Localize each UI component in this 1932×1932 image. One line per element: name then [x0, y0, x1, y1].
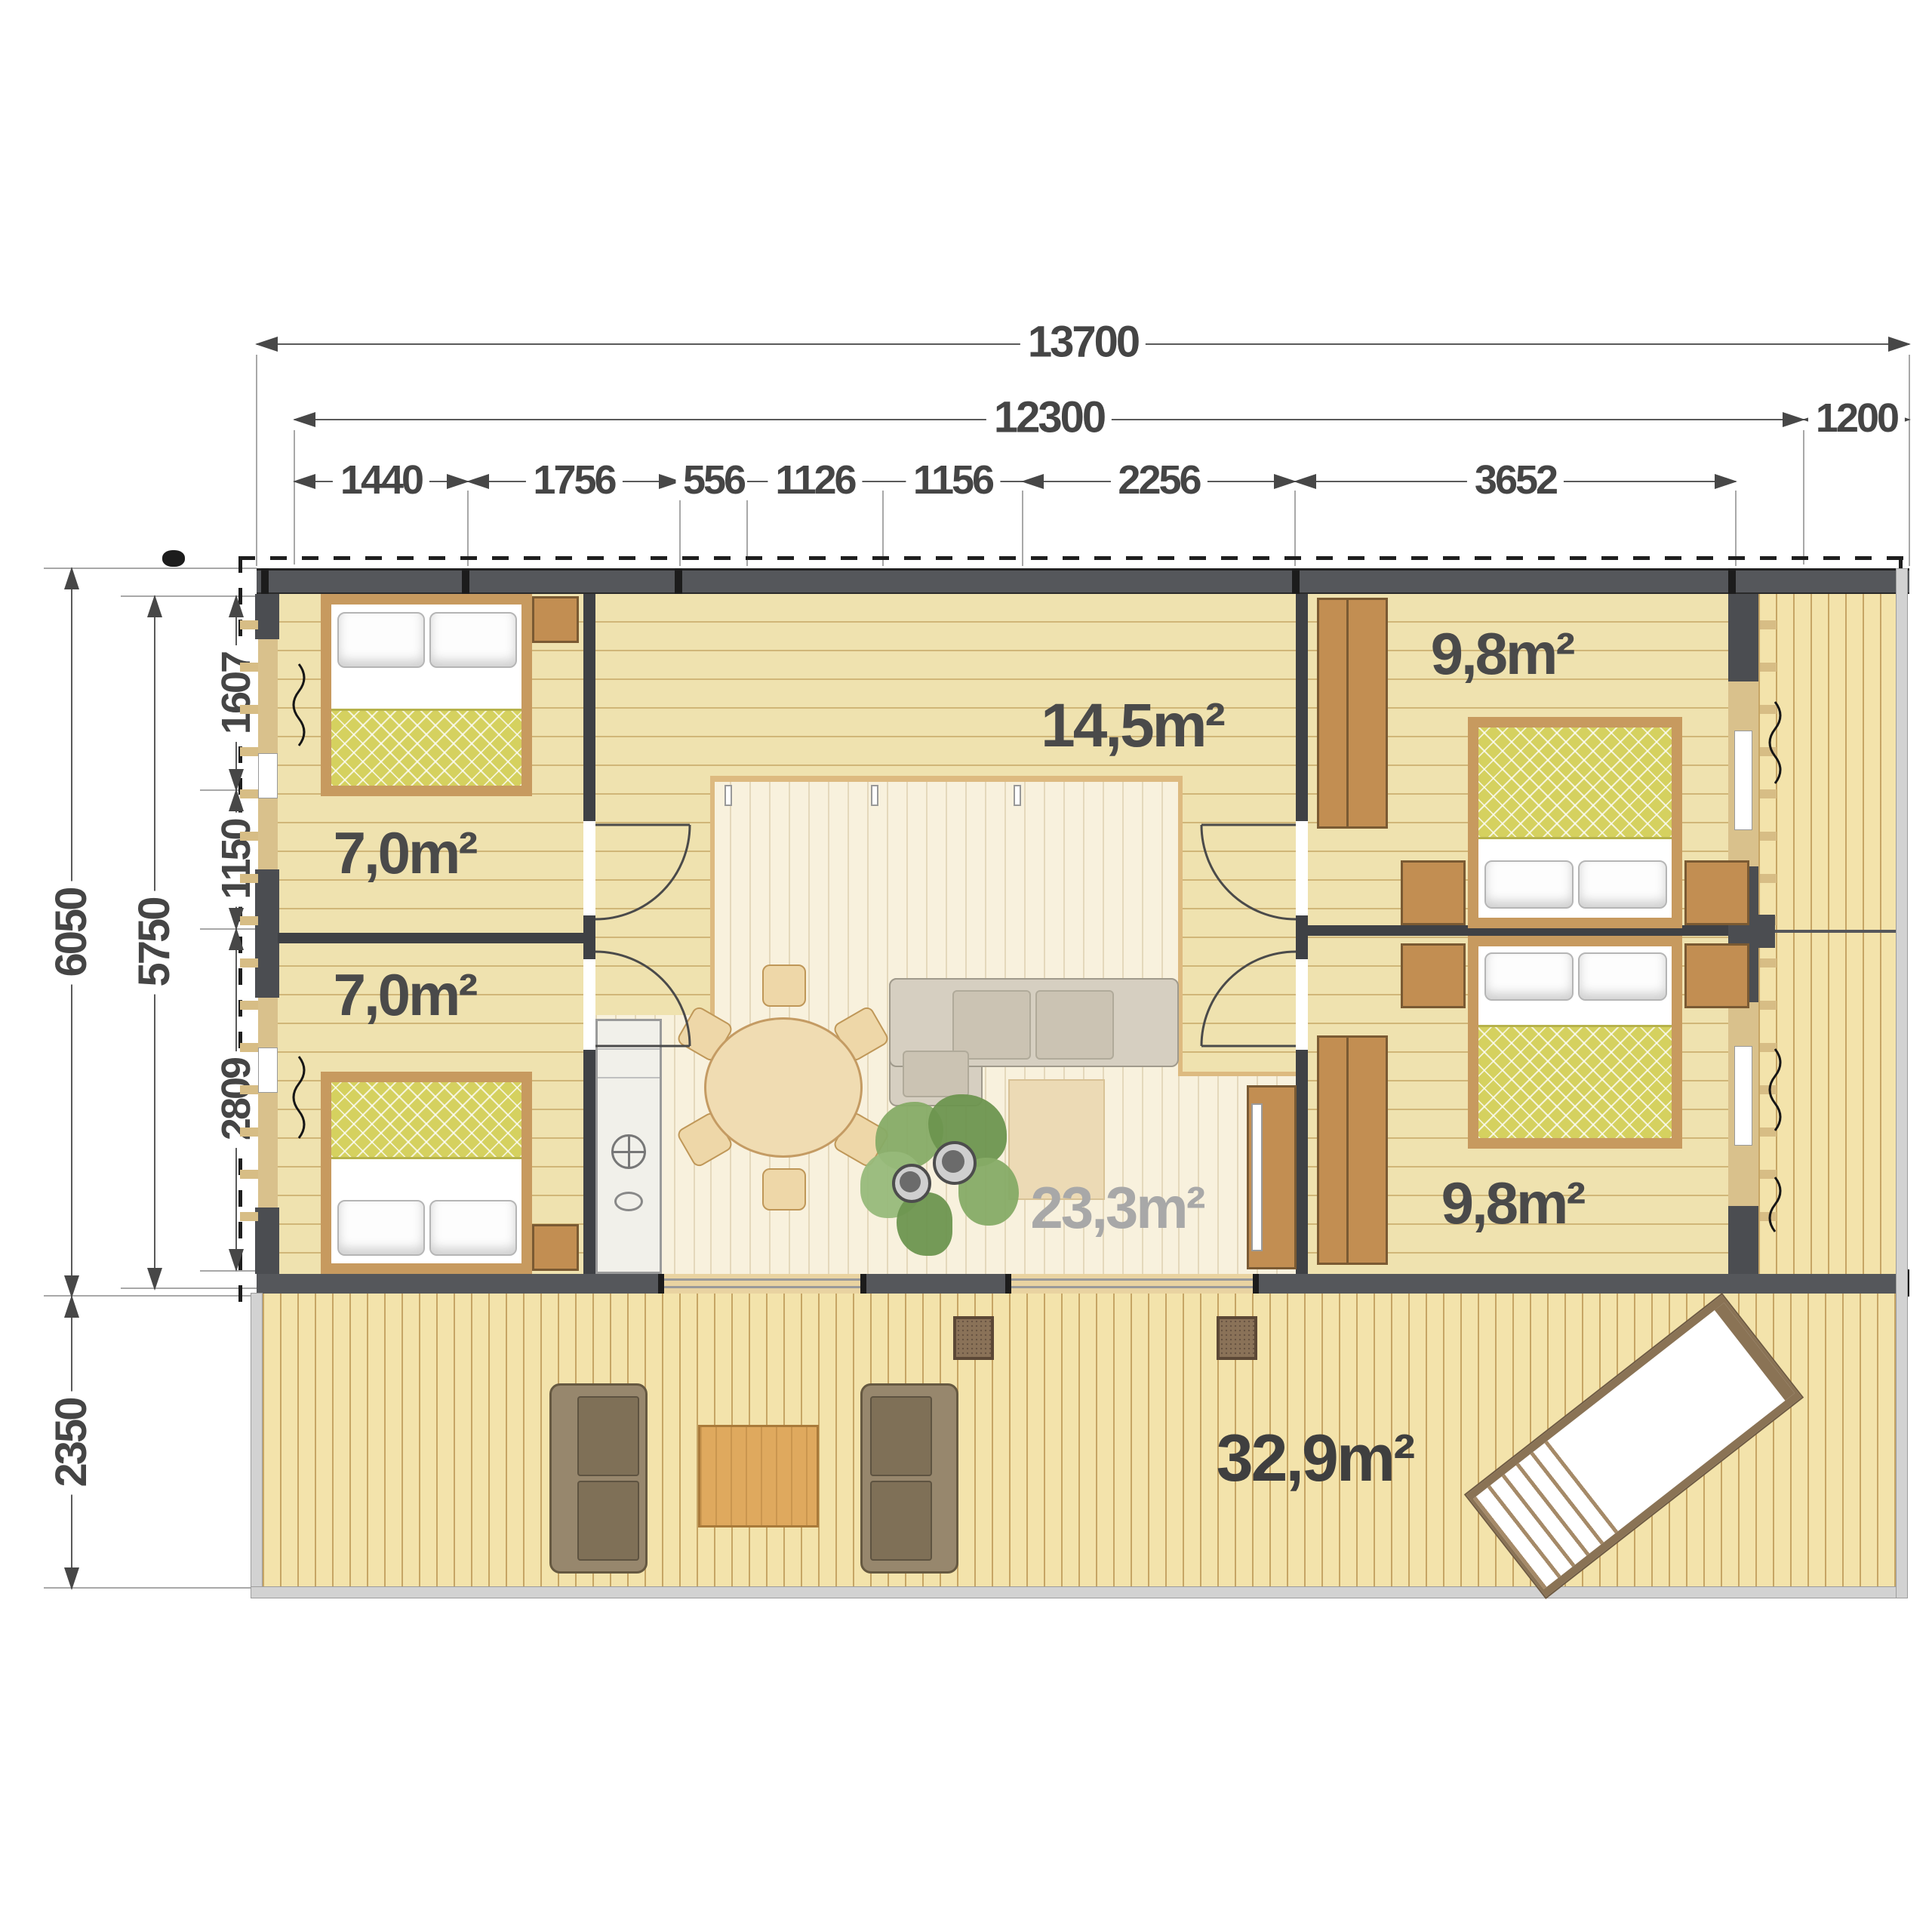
wall-mark	[261, 568, 269, 594]
wall-bedrooms-left	[583, 1050, 595, 1274]
room-label-bedroom-left-top: 7,0m²	[334, 823, 476, 882]
dim-top-main-label: 12300	[986, 396, 1112, 440]
post-mark	[724, 785, 732, 806]
outdoor-sofa-right	[860, 1383, 958, 1574]
wall-mark	[1253, 1274, 1259, 1294]
dining-chair	[762, 1168, 806, 1211]
joist-tabs-left	[240, 620, 258, 1254]
wall-right-post-top	[1728, 594, 1758, 681]
terrace-edge-right	[1896, 568, 1908, 1598]
post-mark	[1014, 785, 1021, 806]
room-label-hall: 14,5m²	[1041, 695, 1223, 757]
nightstand	[1401, 860, 1466, 925]
post-mark	[871, 785, 878, 806]
nightstand	[1684, 943, 1749, 1008]
wardrobe-right-bottom	[1317, 1035, 1388, 1265]
extension-line	[1294, 491, 1296, 566]
outdoor-sofa-left	[549, 1383, 648, 1574]
bed-right-top	[1468, 717, 1682, 928]
nightstand	[532, 1224, 579, 1271]
wall-bedrooms-left	[583, 915, 595, 959]
room-label-living: 23,3m²	[1030, 1178, 1203, 1237]
dim-segment-3652: 3652	[1295, 470, 1736, 493]
wall-bottom-mid	[860, 1274, 1011, 1294]
plant	[860, 1094, 1019, 1275]
nightstand	[1684, 860, 1749, 925]
terrace-edge-bottom	[251, 1586, 1908, 1598]
nightstand	[1401, 943, 1466, 1008]
dim-left-total: 6050	[60, 568, 83, 1297]
extension-line	[1909, 355, 1910, 566]
wall-mark	[1728, 568, 1736, 594]
extension-line	[1022, 491, 1023, 566]
wall-left-post-mid	[255, 869, 279, 998]
dim-left-terrace: 2350	[60, 1297, 83, 1589]
doormat	[953, 1316, 994, 1360]
wall-top	[257, 568, 1909, 594]
wall-bottom-right	[1253, 1274, 1909, 1294]
marker-dot	[162, 550, 185, 567]
wall-right-post-bottom	[1728, 1206, 1758, 1274]
dim-segment-2256: 2256	[1023, 470, 1295, 493]
bed-left-top	[321, 594, 532, 796]
tv-screen	[1251, 1103, 1263, 1251]
dim-top-total-label: 13700	[1020, 321, 1146, 365]
dim-left-inner: 5750	[143, 596, 166, 1289]
dim-segment-1126: 1126	[747, 470, 883, 493]
stove-icon	[611, 1134, 646, 1169]
outdoor-table	[698, 1425, 819, 1527]
dim-top-side: 1200	[1804, 408, 1909, 431]
dim-segment-1156: 1156	[883, 470, 1023, 493]
wall-bedrooms-right	[1296, 1050, 1308, 1274]
dim-segment-1440: 1440	[294, 470, 468, 493]
window-right-1	[1734, 731, 1752, 830]
sofa-cushion	[952, 990, 1031, 1060]
dim-top-main: 12300	[294, 408, 1804, 431]
bed-right-bottom	[1468, 936, 1682, 1149]
living-boundary-top	[710, 776, 1178, 782]
wall-bedrooms-left	[583, 594, 595, 821]
dashed-reference-top	[238, 556, 1915, 560]
dining-chair	[762, 964, 806, 1007]
sink-icon	[614, 1192, 643, 1211]
floor-side-porch	[1758, 592, 1896, 1293]
dim-top-total: 13700	[257, 333, 1909, 355]
plant-pot	[933, 1141, 977, 1185]
nightstand	[532, 596, 579, 643]
wall-mark	[675, 568, 682, 594]
dim-segment-1756: 1756	[468, 470, 680, 493]
dim-top-side-label: 1200	[1808, 398, 1905, 438]
dining-table	[704, 1017, 863, 1158]
window-left-1	[258, 753, 278, 798]
patio-door-2	[1011, 1274, 1253, 1294]
wall-bedrooms-right	[1296, 594, 1308, 821]
terrace-edge-left	[251, 1293, 263, 1598]
plant-pot	[892, 1164, 931, 1203]
extension-line	[882, 491, 884, 566]
room-label-bedroom-right-top: 9,8m²	[1431, 624, 1574, 683]
wall-left-post-bottom	[255, 1207, 279, 1274]
living-boundary-step	[1178, 1072, 1296, 1076]
porch-divider-line	[1758, 930, 1899, 933]
wardrobe-right-top	[1317, 598, 1388, 829]
sofa-cushion	[903, 1051, 969, 1097]
wall-left-post-top	[255, 594, 279, 639]
extension-line	[467, 491, 469, 566]
room-label-bedroom-right-bottom: 9,8m²	[1441, 1174, 1584, 1232]
extension-line	[1735, 491, 1737, 566]
patio-door-1	[664, 1274, 860, 1294]
wall-bottom-left	[257, 1274, 664, 1294]
living-boundary-left	[710, 780, 715, 1015]
extension-line	[1803, 430, 1804, 565]
room-label-bedroom-left-bottom: 7,0m²	[334, 965, 476, 1024]
wall-mark	[1292, 568, 1300, 594]
wall-mark	[860, 1274, 866, 1294]
extension-line	[746, 491, 748, 566]
dim-segment-556: 556	[680, 470, 747, 493]
wall-mark	[658, 1274, 664, 1294]
doormat	[1217, 1316, 1257, 1360]
floor-plan-canvas: 13700 12300 1200 1440 1756 556 1126 1156…	[0, 0, 1932, 1932]
bed-left-bottom	[321, 1072, 532, 1274]
wall-mark	[462, 568, 469, 594]
sofa-cushion	[1035, 990, 1114, 1060]
porch-divider-stub	[1758, 915, 1775, 948]
extension-line	[256, 355, 257, 566]
room-label-terrace: 32,9m²	[1217, 1425, 1414, 1491]
kitchen-counter	[595, 1019, 662, 1274]
extension-line	[294, 430, 295, 565]
extension-line	[679, 491, 681, 566]
window-left-2	[258, 1048, 278, 1093]
window-right-2	[1734, 1046, 1752, 1146]
wall-mark	[1005, 1274, 1011, 1294]
wall-divider-left	[278, 933, 583, 943]
wall-bedrooms-right	[1296, 915, 1308, 959]
